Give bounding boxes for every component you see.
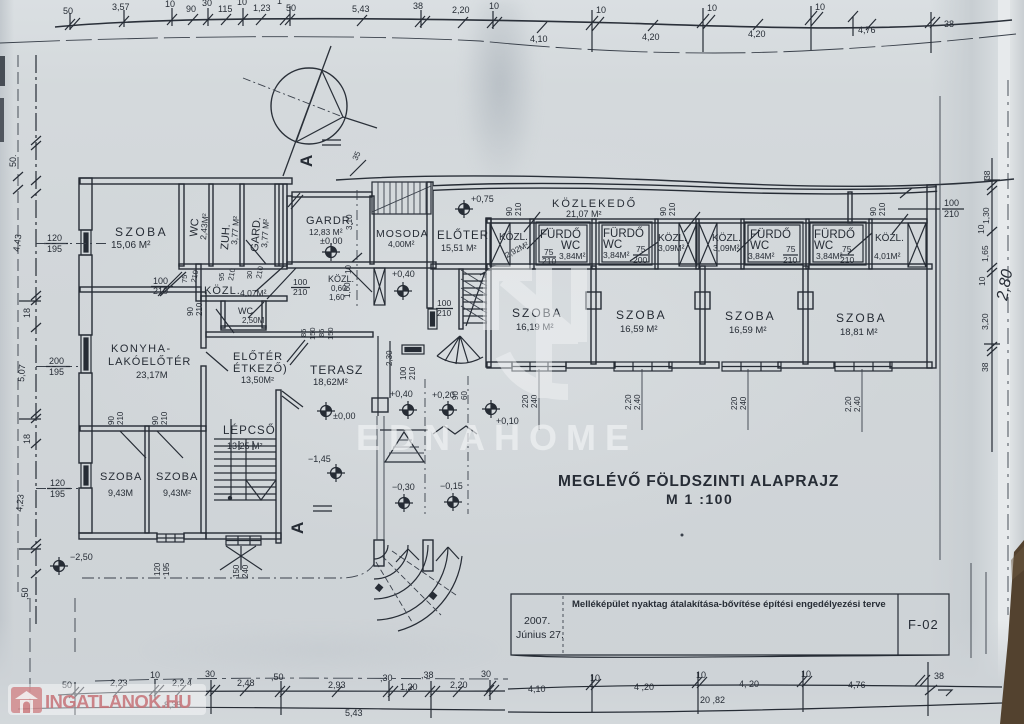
svg-text:195: 195 [47,244,62,254]
svg-text:10: 10 [696,670,706,680]
svg-text:9,43M: 9,43M [108,488,133,498]
svg-text:ÉTKEZŐ): ÉTKEZŐ) [233,361,288,375]
svg-text:4,10: 4,10 [530,34,548,44]
svg-text:18,62M²: 18,62M² [313,377,348,388]
svg-text:210: 210 [293,287,307,297]
svg-text:50: 50 [63,6,73,16]
svg-text:−1,45: −1,45 [308,454,331,464]
svg-text:4,20: 4,20 [748,29,766,39]
svg-text:10: 10 [165,0,175,9]
svg-text:100: 100 [437,298,451,308]
svg-text:,50: ,50 [20,587,30,600]
svg-text:4 ,20: 4 ,20 [634,682,654,692]
svg-text:240: 240 [739,396,748,410]
svg-text:100: 100 [153,276,168,286]
svg-text:3,20: 3,20 [980,313,990,330]
svg-text:,30: ,30 [380,673,393,683]
svg-text:210: 210 [195,302,204,316]
svg-text:3,09M²: 3,09M² [713,243,740,253]
svg-text:15,06 M²: 15,06 M² [111,240,151,251]
svg-text:23,17M: 23,17M [136,370,168,381]
svg-text:2,48: 2,48 [237,678,255,688]
svg-text:50.: 50. [8,154,18,167]
svg-text:16,59 M²: 16,59 M² [620,324,658,335]
svg-text:210: 210 [226,267,237,281]
svg-text:−0,30: −0,30 [392,482,415,492]
svg-text:120: 120 [50,478,65,488]
svg-text:2,20: 2,20 [452,5,470,15]
svg-text:FÜRDŐ: FÜRDŐ [814,227,855,241]
svg-text:4,43: 4,43 [11,234,23,253]
svg-text:210: 210 [840,255,854,265]
svg-text:10: 10 [489,1,499,11]
svg-text:4,20: 4,20 [642,32,660,42]
svg-text:2007.: 2007. [524,615,550,627]
svg-text:2,20: 2,20 [624,394,633,410]
svg-text:4,01M²: 4,01M² [874,251,901,261]
svg-text:+0,40: +0,40 [390,389,413,399]
svg-text:SZOBA: SZOBA [100,471,142,483]
svg-text:90: 90 [505,207,514,216]
svg-text:90: 90 [186,4,196,14]
svg-text:18: 18 [22,434,32,444]
svg-text:38: 38 [980,362,990,372]
svg-text:1,65: 1,65 [980,245,990,262]
svg-text:10: 10 [976,224,986,234]
svg-text:3,09M²: 3,09M² [658,243,685,253]
svg-text:3,84M²: 3,84M² [816,251,843,261]
svg-text:SZOBA: SZOBA [725,309,776,323]
svg-text:30: 30 [202,0,212,8]
svg-text:2,50M: 2,50M [242,316,265,325]
svg-text:2,93: 2,93 [328,680,346,690]
svg-text:100: 100 [293,277,307,287]
svg-text:KONYHA-: KONYHA- [111,343,172,355]
svg-text:3,77 M²: 3,77 M² [259,219,271,249]
svg-text:4, 20: 4, 20 [739,679,759,689]
svg-text:10: 10 [801,669,811,679]
svg-text:2,20: 2,20 [450,680,468,690]
svg-text:10: 10 [590,673,600,683]
svg-text:38: 38 [944,19,954,29]
svg-text:30: 30 [245,271,254,279]
svg-text:210: 210 [514,202,523,216]
svg-text:210: 210 [944,209,959,219]
svg-text:3,77 M²: 3,77 M² [229,216,241,246]
svg-text:2,40: 2,40 [633,394,642,410]
svg-text:1,30: 1,30 [981,207,991,224]
svg-text:SZOBA: SZOBA [616,308,667,322]
svg-text:10: 10 [707,3,717,13]
svg-text:,38: ,38 [421,670,434,680]
svg-text:,50: ,50 [271,672,284,682]
svg-text:MEGLÉVŐ FÖLDSZINTI ALAPRAJZ: MEGLÉVŐ FÖLDSZINTI ALAPRAJZ [558,472,839,490]
svg-text:220: 220 [730,396,739,410]
svg-text:ELŐTER: ELŐTER [437,228,489,242]
svg-text:5,07: 5,07 [16,364,27,382]
svg-text:150: 150 [232,564,241,578]
svg-text:SZOBA: SZOBA [156,471,198,483]
svg-text:85: 85 [299,329,308,337]
svg-text:4,76: 4,76 [848,680,866,690]
svg-text:2,80: 2,80 [994,268,1016,303]
svg-text:95: 95 [217,273,226,281]
svg-text:10: 10 [344,265,353,274]
svg-text:5,43: 5,43 [345,708,363,718]
svg-text:115: 115 [218,4,232,14]
svg-text:195: 195 [50,489,65,499]
svg-text:150: 150 [326,327,335,340]
svg-text:10: 10 [150,670,160,680]
svg-text:−0,15: −0,15 [440,481,463,491]
svg-text:2,20: 2,20 [844,396,853,412]
svg-text:100: 100 [944,198,959,208]
svg-text:75: 75 [786,244,796,254]
svg-text:1,60: 1,60 [343,282,352,298]
svg-text:SZOBA: SZOBA [115,225,168,239]
svg-text:38: 38 [982,170,992,180]
svg-text:75: 75 [180,275,189,283]
svg-text:4,00M²: 4,00M² [388,239,415,249]
svg-text:LAKÓELŐTÉR: LAKÓELŐTÉR [108,354,191,368]
svg-text:+0,75: +0,75 [471,194,494,204]
svg-text:200: 200 [633,255,647,265]
svg-text:4,10: 4,10 [528,684,546,694]
svg-text:200: 200 [49,356,64,366]
svg-text:15,51 M²: 15,51 M² [441,243,477,253]
svg-text:2,30: 2,30 [385,350,394,366]
svg-text:KÖZL.: KÖZL. [204,285,241,297]
svg-text:M 1 :100: M 1 :100 [666,491,733,507]
svg-text:85: 85 [317,329,326,337]
svg-text:4,76: 4,76 [858,25,876,35]
svg-text:FÜRDŐ: FÜRDŐ [540,227,581,241]
svg-text:3,10: 3,10 [345,214,354,230]
svg-text:3,84M²: 3,84M² [559,251,586,261]
svg-text:210: 210 [189,269,200,283]
svg-text:50: 50 [286,3,296,13]
svg-text:3,57: 3,57 [112,2,130,12]
svg-text:30: 30 [205,669,215,679]
svg-text:90: 90 [151,416,160,425]
svg-text:90: 90 [869,207,878,216]
svg-text:38: 38 [934,671,944,681]
svg-text:35: 35 [351,149,363,161]
svg-text:210: 210 [437,308,451,318]
svg-text:10: 10 [977,276,987,286]
svg-text:120: 120 [153,562,162,576]
svg-text:90: 90 [107,416,116,425]
svg-text:KÖZL.: KÖZL. [875,232,904,244]
svg-text:16,59 M²: 16,59 M² [729,325,767,336]
svg-text:240: 240 [241,564,250,578]
svg-text:9,43M²: 9,43M² [163,488,191,498]
svg-text:210: 210 [116,411,125,425]
svg-text:150: 150 [308,327,317,340]
svg-text:1: 1 [277,0,282,6]
svg-text:38: 38 [413,1,423,11]
svg-text:10: 10 [596,5,606,15]
svg-text:210: 210 [878,202,887,216]
svg-text:90: 90 [659,207,668,216]
svg-text:3,84M²: 3,84M² [603,250,630,260]
svg-text:20 ,82: 20 ,82 [700,695,725,705]
svg-text:75: 75 [636,244,646,254]
svg-text:30: 30 [481,669,491,679]
svg-text:1,20: 1,20 [400,682,418,692]
svg-text:TERASZ: TERASZ [310,363,363,377]
svg-text:EDNAHOME: EDNAHOME [356,417,638,458]
svg-text:210: 210 [408,366,417,380]
svg-text:10: 10 [815,2,825,12]
svg-text:5,43: 5,43 [352,4,370,14]
svg-text:−2,50: −2,50 [70,552,93,562]
svg-text:KÖZLEKEDŐ: KÖZLEKEDŐ [552,196,637,210]
svg-text:21,07 M²: 21,07 M² [566,209,602,219]
svg-text:2,40: 2,40 [853,396,862,412]
svg-text:13 25 M²: 13 25 M² [227,441,263,451]
svg-text:4,23: 4,23 [14,494,26,512]
svg-text:18,81 M²: 18,81 M² [840,327,878,338]
svg-text:120: 120 [47,233,62,243]
svg-text:210: 210 [783,255,797,265]
svg-text:1,23: 1,23 [253,3,271,13]
svg-text:195: 195 [162,562,171,576]
svg-text:+0,20: +0,20 [432,390,455,400]
svg-text:60: 60 [460,391,469,400]
svg-text:A: A [288,522,307,534]
svg-text:4,07M²: 4,07M² [240,288,267,298]
svg-text:INGATLANOK.HU: INGATLANOK.HU [45,691,191,712]
svg-text:ELŐTÉR: ELŐTÉR [233,349,283,363]
svg-text:Június 27.: Június 27. [516,629,564,641]
svg-text:210: 210 [668,202,677,216]
svg-text:3,84M²: 3,84M² [748,251,775,261]
svg-text:90: 90 [186,307,195,316]
svg-text:±0,00: ±0,00 [320,236,342,246]
svg-text:Melléképület nyaktag átalakítá: Melléképület nyaktag átalakítása-bővítés… [572,599,886,610]
svg-text:10: 10 [237,0,247,7]
svg-text:LÉPCSŐ: LÉPCSŐ [223,423,276,437]
svg-text:SZOBA: SZOBA [836,311,887,325]
svg-text:13,50M²: 13,50M² [241,375,274,385]
svg-text:FÜRDŐ: FÜRDŐ [603,226,644,240]
svg-text:100: 100 [399,366,408,380]
svg-text:210: 210 [254,265,265,279]
svg-text:A: A [297,155,316,167]
svg-text:F-02: F-02 [908,617,939,632]
svg-text:18: 18 [22,308,32,318]
svg-text:220: 220 [521,394,530,408]
svg-text:210: 210 [160,411,169,425]
svg-text:+0,40: +0,40 [392,269,415,279]
svg-text:195: 195 [49,367,64,377]
svg-text:±0,00: ±0,00 [333,411,355,421]
